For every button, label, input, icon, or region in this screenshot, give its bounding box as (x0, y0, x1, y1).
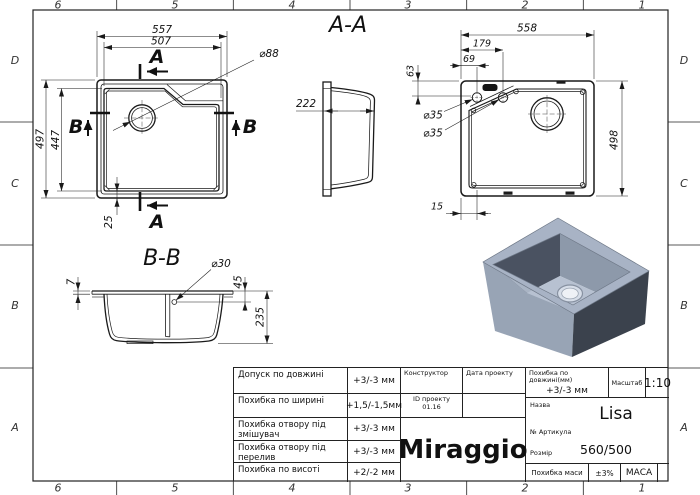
mass-tolerance-value: ±3% (589, 464, 621, 482)
tolerance-label: Допуск по довжині (234, 368, 348, 394)
dia-30: ⌀30 (211, 258, 231, 270)
dim-45: 45 (233, 275, 245, 289)
dim-222: 222 (296, 98, 316, 110)
dim-447: 447 (50, 130, 62, 150)
drain-hole-plan (124, 100, 160, 136)
zone-row-label: C (11, 177, 19, 190)
zone-row-label: C (680, 177, 688, 190)
mass-tolerance-label: Похибка маси (526, 464, 589, 482)
dim-235: 235 (255, 307, 267, 327)
section-letter-b: B (69, 116, 83, 138)
mass-label: МАСА (621, 464, 658, 482)
name-value: Lisa (581, 404, 651, 424)
tolerance-label: Похибка по ширині (234, 394, 348, 418)
size-value: 560/500 (574, 442, 638, 457)
section-letter-b: B (243, 116, 257, 138)
length-tolerance-cell: Похибка по довжині(мм) +3/-3 мм (526, 368, 609, 398)
dia-35-second: ⌀35 (423, 128, 443, 140)
tolerance-label: Похибка по висоті (234, 463, 348, 482)
zone-col-label: 3 (405, 0, 412, 12)
project-id-label: ID проекту (401, 394, 462, 403)
tolerance-value: +3/-3 мм (348, 418, 401, 441)
part-info-cell: Назва Lisa № Артикула Розмір 560/500 (526, 398, 669, 464)
length-tolerance-label: Похибка по довжині(мм) (526, 368, 608, 384)
zone-col-label: 6 (55, 482, 62, 495)
scale-value: 1:10 (646, 368, 669, 398)
tolerance-label: Похибка отвору під змішувач (234, 418, 348, 441)
name-label: Назва (530, 401, 550, 409)
tolerance-value: +3/-3 мм (348, 441, 401, 463)
dim-15: 15 (431, 202, 443, 213)
zone-col-label: 5 (172, 482, 179, 495)
sink-drain-hole (562, 288, 579, 299)
drawing-sheet: 6 5 4 3 2 1 6 5 4 3 2 1 D C B A D C B A (0, 0, 700, 495)
bottom-view (412, 30, 628, 220)
dim-7: 7 (66, 278, 78, 285)
zone-col-label: 4 (289, 0, 296, 12)
length-tolerance-value: +3/-3 мм (526, 386, 608, 396)
article-label: № Артикула (530, 428, 571, 436)
zone-col-label: 4 (289, 482, 296, 495)
dim-179: 179 (473, 39, 491, 50)
tap-holes (471, 91, 510, 104)
zone-row-label: B (680, 299, 688, 312)
zone-row-label: D (680, 54, 688, 67)
dim-63: 63 (406, 65, 417, 77)
section-bb-title: B-B (143, 246, 181, 271)
size-label: Розмір (530, 449, 552, 457)
empty-cell (463, 394, 526, 418)
plan-view-labels: 557 507 497 447 25 ⌀88 A A B B (35, 24, 280, 233)
title-block: Допуск по довжині +3/-3 мм Похибка по ши… (233, 367, 668, 481)
zone-col-label: 1 (639, 0, 646, 12)
zone-col-label: 2 (522, 0, 529, 12)
dim-497: 497 (35, 129, 47, 149)
faucet-slot (483, 84, 498, 91)
dim-498: 498 (609, 130, 621, 150)
zone-row-label: D (11, 54, 19, 67)
sink-3d-render (483, 218, 649, 357)
zone-row-label: B (11, 299, 19, 312)
dim-69: 69 (463, 54, 475, 65)
dim-558: 558 (517, 23, 537, 35)
drain-hole-bottom (528, 95, 566, 133)
zone-col-label: 6 (55, 0, 62, 12)
overflow-divider (166, 294, 170, 337)
zone-col-label: 1 (639, 482, 646, 495)
dia-88: ⌀88 (259, 48, 279, 60)
empty-cell (658, 464, 669, 482)
project-id-value: 01.16 (401, 403, 462, 411)
section-b-marks (88, 113, 236, 136)
project-id-cell: ID проекту 01.16 (401, 394, 463, 418)
dim-25: 25 (103, 215, 115, 229)
dia-35-first: ⌀35 (423, 110, 443, 122)
tolerance-value: +2/-2 мм (348, 463, 401, 482)
zone-col-label: 3 (405, 482, 412, 495)
section-letter-a: A (148, 46, 165, 68)
tolerance-value: +1,5/-1,5мм (348, 394, 401, 418)
zone-row-label: A (679, 421, 688, 434)
zone-col-label: 5 (172, 0, 179, 12)
dim-557: 557 (152, 24, 172, 36)
project-date-cell: Дата проекту (463, 368, 526, 394)
section-letter-a: A (148, 211, 165, 233)
tolerance-value: +3/-3 мм (348, 368, 401, 394)
section-a-marks (140, 64, 168, 211)
constructor-cell: Конструктор (401, 368, 463, 394)
brand-logo: Miraggio (401, 418, 526, 482)
section-aa-title: A-A (327, 13, 367, 38)
mounting-tabs (504, 81, 575, 195)
bottom-view-labels: 558 179 69 63 ⌀35 ⌀35 498 15 (406, 23, 621, 213)
zone-row-label: A (10, 421, 19, 434)
tolerance-label: Похибка отвору під перелив (234, 441, 348, 463)
zone-col-label: 2 (522, 482, 529, 495)
scale-label: Масштаб (609, 368, 646, 398)
